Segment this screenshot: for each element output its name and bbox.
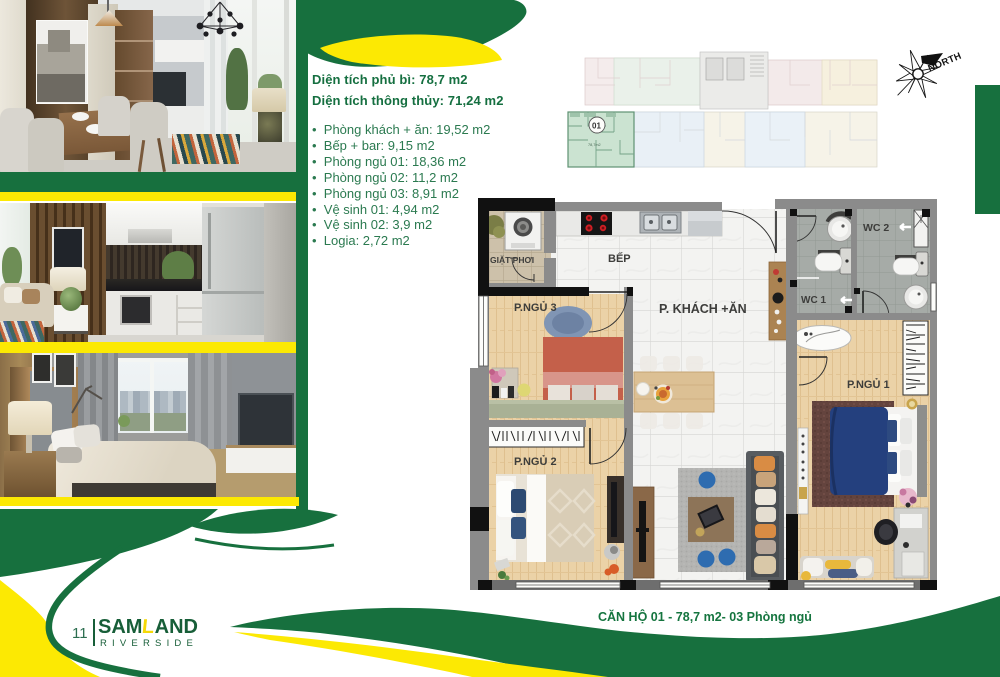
svg-text:WC 1: WC 1 (801, 295, 826, 306)
svg-text:BẾP: BẾP (608, 252, 631, 265)
svg-text:P. KHÁCH +ĂN: P. KHÁCH +ĂN (659, 301, 747, 316)
svg-text:WC 2: WC 2 (863, 222, 889, 234)
svg-text:P.NGỦ 1: P.NGỦ 1 (847, 378, 890, 391)
svg-text:78,7m2: 78,7m2 (588, 143, 601, 147)
svg-text:GIẶT PHƠI: GIẶT PHƠI (490, 255, 534, 265)
svg-text:P.NGỦ 3: P.NGỦ 3 (514, 301, 557, 314)
svg-text:NORTH: NORTH (926, 51, 963, 75)
svg-text:01: 01 (592, 122, 601, 131)
svg-text:P.NGỦ 2: P.NGỦ 2 (514, 455, 557, 468)
